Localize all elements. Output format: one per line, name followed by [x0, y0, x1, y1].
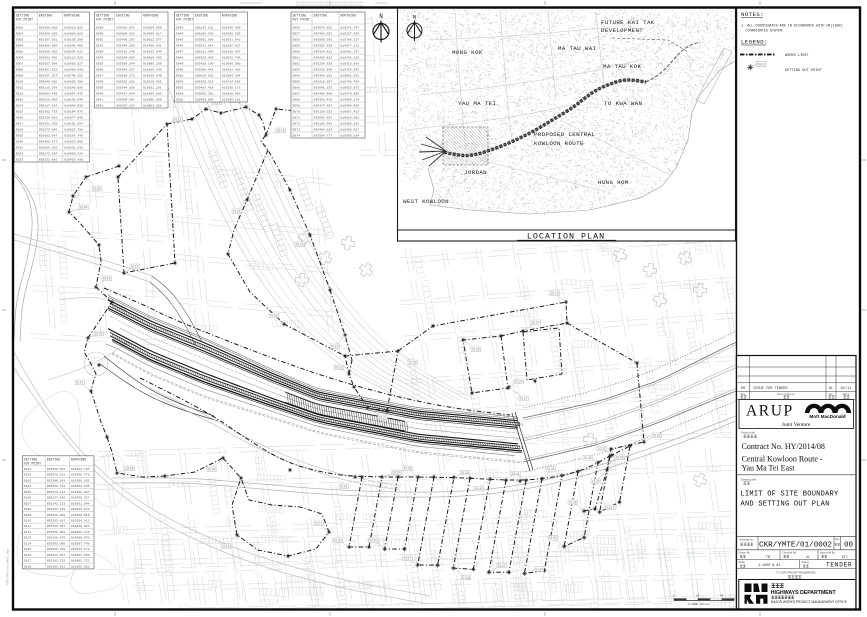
svg-text:S008: S008: [16, 67, 24, 71]
svg-text:S114: S114: [24, 541, 32, 545]
svg-text:1:1000 @ A1: 1:1000 @ A1: [758, 563, 780, 568]
svg-text:835407.134: 835407.134: [116, 103, 135, 107]
svg-text:S016: S016: [16, 115, 24, 119]
svg-text:819765.327: 819765.327: [71, 496, 90, 500]
svg-text:KTC: KTC: [842, 555, 848, 559]
svg-text:818823.088: 818823.088: [64, 139, 83, 143]
svg-text:S034: S034: [96, 55, 104, 59]
svg-text:835557.368: 835557.368: [39, 61, 58, 65]
svg-text:819506.380: 819506.380: [222, 61, 241, 65]
svg-text:S011: S011: [16, 85, 24, 89]
svg-text:819364.912: 819364.912: [71, 519, 90, 523]
svg-text:S014: S014: [16, 103, 24, 107]
svg-text:819510.856: 819510.856: [341, 61, 360, 65]
svg-text:818965.148: 818965.148: [71, 530, 90, 534]
svg-text:835319.909: 835319.909: [47, 513, 66, 517]
svg-text:835118.207: 835118.207: [314, 79, 333, 83]
svg-text:S072: S072: [293, 121, 301, 125]
svg-text:S040: S040: [96, 91, 104, 95]
svg-text:Approved By: Approved By: [820, 550, 836, 554]
svg-text:819106.540: 819106.540: [64, 97, 83, 101]
svg-text:S036: S036: [96, 67, 104, 71]
svg-text:835602.547: 835602.547: [39, 133, 58, 137]
svg-text:S052: S052: [176, 79, 184, 83]
svg-text:S123: S123: [551, 292, 559, 296]
svg-text:819194.975: 819194.975: [64, 109, 83, 113]
svg-text:819616.920: 819616.920: [64, 25, 83, 29]
svg-text:835360.441: 835360.441: [195, 67, 214, 71]
svg-text:835202.261: 835202.261: [116, 79, 135, 83]
svg-text:835485.377: 835485.377: [39, 139, 58, 143]
svg-text:818877.123: 818877.123: [341, 43, 360, 47]
svg-text:S048: S048: [176, 55, 184, 59]
svg-text:819300.034: 819300.034: [341, 133, 360, 137]
svg-text:S111: S111: [24, 524, 32, 528]
svg-text:S030: S030: [96, 31, 104, 35]
svg-text:S136: S136: [404, 467, 412, 471]
svg-text:835563.381: 835563.381: [195, 91, 214, 95]
svg-text:819715.590: 819715.590: [341, 67, 360, 71]
svg-text:S112: S112: [24, 530, 32, 534]
svg-text:819136.649: 819136.649: [143, 73, 162, 77]
svg-text:S128: S128: [653, 434, 661, 438]
svg-text:835366.478: 835366.478: [314, 97, 333, 101]
svg-text:819195.173: 819195.173: [222, 85, 241, 89]
svg-text:NORTHING: NORTHING: [222, 14, 237, 18]
svg-text:S101: S101: [24, 467, 32, 471]
svg-text:S022: S022: [16, 151, 24, 155]
svg-text:835358.092: 835358.092: [47, 530, 66, 534]
svg-text:835162.240: 835162.240: [116, 49, 135, 53]
svg-text:S031: S031: [96, 37, 104, 41]
svg-text:COORDINATES SYSTEM.: COORDINATES SYSTEM.: [746, 30, 785, 34]
svg-text:Rev: Rev: [741, 393, 746, 396]
svg-text:EASTING: EASTING: [47, 457, 60, 461]
svg-text:S065: S065: [293, 79, 301, 83]
svg-text:835695.526: 835695.526: [39, 145, 58, 149]
svg-text:Rev: Rev: [835, 538, 840, 541]
svg-text:835640.856: 835640.856: [39, 79, 58, 83]
svg-text:ISSUE FOR TENDER: ISSUE FOR TENDER: [753, 387, 788, 391]
svg-text:818863.828: 818863.828: [143, 103, 162, 107]
svg-text:S073: S073: [293, 127, 301, 131]
svg-text:835226.546: 835226.546: [314, 67, 333, 71]
svg-text:S124: S124: [532, 321, 540, 325]
svg-text:S003: S003: [16, 37, 24, 41]
svg-text:Yau Ma Tei East: Yau Ma Tei East: [742, 464, 796, 473]
svg-text:818681.237: 818681.237: [341, 49, 360, 53]
svg-text:818995.159: 818995.159: [143, 61, 162, 65]
svg-text:S013: S013: [16, 97, 24, 101]
svg-text:WORKS LIMIT: WORKS LIMIT: [785, 54, 810, 58]
svg-text:S009: S009: [16, 73, 24, 77]
svg-text:S038: S038: [96, 79, 104, 83]
svg-text:TENDER: TENDER: [826, 561, 852, 568]
svg-text:S020: S020: [16, 139, 24, 143]
svg-text:KOWLOON ROUTE: KOWLOON ROUTE: [534, 140, 584, 147]
svg-text:818636.708: 818636.708: [64, 79, 83, 83]
svg-text:AL: AL: [806, 555, 810, 559]
svg-text:S032: S032: [96, 43, 104, 47]
svg-text:S120: S120: [409, 361, 417, 365]
svg-text:835428.190: 835428.190: [195, 61, 214, 65]
svg-text:835679.151: 835679.151: [47, 473, 66, 477]
svg-text:S039: S039: [96, 85, 104, 89]
svg-text:S121: S121: [379, 416, 387, 420]
svg-text:818823.873: 818823.873: [341, 85, 360, 89]
svg-text:S103: S103: [93, 187, 101, 191]
svg-text:OUT POINT: OUT POINT: [16, 18, 33, 22]
svg-text:WEST KOWLOON: WEST KOWLOON: [403, 198, 449, 205]
svg-text:Project title: Project title: [741, 431, 755, 435]
svg-text:Drawing No.: Drawing No.: [739, 537, 754, 541]
svg-text:819073.572: 819073.572: [71, 547, 90, 551]
svg-text:EASTING: EASTING: [195, 14, 208, 18]
svg-text:819631.936: 819631.936: [64, 145, 83, 149]
svg-text:835327.567: 835327.567: [47, 553, 66, 557]
svg-text:© COPYRIGHT RESERVED: © COPYRIGHT RESERVED: [776, 571, 816, 575]
svg-text:S105: S105: [24, 490, 32, 494]
svg-text:S023: S023: [16, 157, 24, 161]
svg-text:835505.091: 835505.091: [314, 115, 333, 119]
svg-text:835504.777: 835504.777: [314, 133, 333, 137]
svg-text:835468.948: 835468.948: [314, 91, 333, 95]
svg-text:S106: S106: [95, 332, 103, 336]
svg-text:818606.297: 818606.297: [341, 127, 360, 131]
svg-text:835428.871: 835428.871: [116, 25, 135, 29]
svg-text:835117.424: 835117.424: [39, 103, 58, 107]
svg-text:835502.988: 835502.988: [195, 37, 214, 41]
svg-text:835273.113: 835273.113: [47, 490, 66, 494]
svg-text:S070: S070: [293, 109, 301, 113]
svg-text:S141: S141: [498, 564, 506, 568]
svg-text:S108: S108: [126, 467, 134, 471]
svg-text:S033: S033: [96, 49, 104, 53]
svg-text:819197.927: 819197.927: [222, 43, 241, 47]
svg-text:835532.891: 835532.891: [39, 157, 58, 161]
svg-text:835538.272: 835538.272: [116, 73, 135, 77]
svg-text:835273.869: 835273.869: [39, 127, 58, 131]
svg-text:OUT POINT: OUT POINT: [293, 18, 310, 22]
svg-text:OUT POINT: OUT POINT: [24, 461, 41, 465]
svg-text:835371.914: 835371.914: [195, 43, 214, 47]
svg-text:S117: S117: [24, 559, 32, 563]
svg-text:819012.577: 819012.577: [143, 37, 162, 41]
svg-text:835344.836: 835344.836: [116, 85, 135, 89]
svg-text:N: N: [413, 14, 416, 21]
svg-text:835175.403: 835175.403: [314, 103, 333, 107]
svg-text:819453.430: 819453.430: [64, 157, 83, 161]
svg-text:S148: S148: [616, 456, 624, 460]
svg-text:818634.017: 818634.017: [64, 49, 83, 53]
svg-text:S043: S043: [176, 25, 184, 29]
svg-text:S118: S118: [24, 564, 32, 568]
svg-text:835138.022: 835138.022: [314, 109, 333, 113]
svg-text:00: 00: [844, 542, 854, 550]
svg-text:20: 20: [696, 595, 700, 598]
svg-text:835111.494: 835111.494: [195, 49, 214, 53]
svg-text:818835.682: 818835.682: [143, 91, 162, 95]
svg-text:835103.911: 835103.911: [47, 564, 66, 568]
svg-text:S137: S137: [403, 557, 411, 561]
svg-text:S037: S037: [96, 73, 104, 77]
svg-text:MA TAU KOK: MA TAU KOK: [603, 63, 641, 70]
svg-text:OUT POINT: OUT POINT: [176, 18, 193, 22]
svg-text:Contract No. HY/2014/08: Contract No. HY/2014/08: [742, 442, 825, 451]
svg-text:S002: S002: [16, 31, 24, 35]
svg-text:835229.960: 835229.960: [39, 97, 58, 101]
svg-text:MAJOR WORKS PROJECT MANAGEMENT: MAJOR WORKS PROJECT MANAGEMENT OFFICE: [771, 600, 847, 604]
svg-text:819456.274: 819456.274: [341, 97, 360, 101]
svg-text:835231.269: 835231.269: [39, 121, 58, 125]
svg-text:835406.207: 835406.207: [116, 37, 135, 41]
svg-text:Scale: Scale: [739, 560, 746, 564]
svg-text:1. ALL COORDINATES ARE IN ACCO: 1. ALL COORDINATES ARE IN ACCORDANCE WIT…: [741, 24, 843, 29]
svg-text:835166.479: 835166.479: [47, 536, 66, 540]
svg-text:819402.722: 819402.722: [71, 559, 90, 563]
svg-text:HIGHWAYS DEPARTMENT: HIGHWAYS DEPARTMENT: [771, 590, 837, 596]
svg-text:835324.813: 835324.813: [314, 49, 333, 53]
svg-text:835485.932: 835485.932: [314, 55, 333, 59]
svg-text:835228.714: 835228.714: [47, 484, 66, 488]
svg-text:S110: S110: [24, 519, 32, 523]
svg-text:S113: S113: [24, 536, 32, 540]
svg-text:S106: S106: [24, 496, 32, 500]
svg-text:S118: S118: [296, 243, 304, 247]
svg-text:819588.070: 819588.070: [71, 536, 90, 540]
svg-text:818866.030: 818866.030: [64, 103, 83, 107]
svg-text:S145: S145: [549, 536, 557, 540]
svg-text:S125: S125: [515, 380, 523, 384]
svg-text:S109: S109: [208, 468, 216, 472]
svg-text:Checked By: Checked By: [782, 550, 797, 554]
svg-text:835237.257: 835237.257: [39, 73, 58, 77]
svg-text:819734.325: 819734.325: [64, 73, 83, 77]
svg-text:819120.695: 819120.695: [143, 79, 162, 83]
svg-text:S102: S102: [270, 314, 278, 318]
svg-text:CKR/YMTE/01/0002: CKR/YMTE/01/0002: [759, 542, 832, 550]
svg-text:S107: S107: [76, 381, 84, 385]
svg-text:S018: S018: [16, 127, 24, 131]
svg-text:835342.337: 835342.337: [47, 524, 66, 528]
svg-text:819791.116: 819791.116: [341, 55, 360, 59]
svg-text:819019.480: 819019.480: [143, 55, 162, 59]
svg-text:835699.244: 835699.244: [116, 61, 135, 65]
svg-text:819546.468: 819546.468: [64, 43, 83, 47]
svg-text:S116: S116: [24, 553, 32, 557]
svg-text:AL: AL: [829, 387, 833, 391]
svg-text:Drawing title: Drawing title: [741, 477, 757, 481]
svg-text:S112: S112: [174, 118, 182, 122]
svg-text:S143: S143: [535, 567, 543, 571]
svg-text:818999.234: 818999.234: [64, 151, 83, 155]
svg-text:S122: S122: [335, 366, 343, 370]
svg-text:835181.041: 835181.041: [314, 121, 333, 125]
svg-text:NORTHING: NORTHING: [71, 457, 86, 461]
svg-text:835641.156: 835641.156: [314, 85, 333, 89]
svg-text:S115: S115: [24, 547, 32, 551]
svg-text:S015: S015: [16, 109, 24, 113]
svg-text:FUTURE KAI TAK: FUTURE KAI TAK: [601, 19, 655, 26]
svg-text:S102: S102: [24, 473, 32, 477]
svg-text:835349.296: 835349.296: [116, 43, 135, 47]
svg-text:819196.203: 819196.203: [341, 121, 360, 125]
svg-text:S055: S055: [176, 97, 184, 101]
svg-text:S113: S113: [131, 265, 139, 269]
svg-text:S105: S105: [103, 277, 111, 281]
svg-text:NORTHING: NORTHING: [341, 14, 356, 18]
svg-text:S044: S044: [176, 31, 184, 35]
svg-text:835123.131: 835123.131: [195, 25, 214, 29]
svg-text:835323.425: 835323.425: [195, 55, 214, 59]
svg-text:MA TAU WAI: MA TAU WAI: [558, 45, 596, 52]
svg-text:N: N: [379, 13, 383, 20]
svg-text:DEVELOPMENT: DEVELOPMENT: [601, 27, 643, 34]
svg-text:S119: S119: [331, 345, 339, 349]
svg-text:S132: S132: [598, 447, 606, 451]
svg-text:S035: S035: [96, 61, 104, 65]
svg-text:835397.261: 835397.261: [39, 37, 58, 41]
svg-text:835610.525: 835610.525: [195, 73, 214, 77]
svg-text:S131: S131: [340, 485, 348, 489]
svg-text:S054: S054: [176, 91, 184, 95]
svg-text:819155.039: 819155.039: [222, 31, 241, 35]
svg-text:835560.596: 835560.596: [314, 37, 333, 41]
svg-text:835504.307: 835504.307: [116, 97, 135, 101]
svg-text:835490.956: 835490.956: [39, 43, 58, 47]
svg-text:819133.644: 819133.644: [143, 49, 162, 53]
svg-text:819551.542: 819551.542: [222, 37, 241, 41]
svg-text:819014.998: 819014.998: [143, 25, 162, 29]
svg-text:819103.540: 819103.540: [143, 67, 162, 71]
svg-text:AND SETTING OUT PLAN: AND SETTING OUT PLAN: [741, 501, 830, 509]
svg-text:S135: S135: [369, 539, 377, 543]
svg-text:835352.339: 835352.339: [314, 43, 333, 47]
svg-text:TB: TB: [766, 555, 770, 559]
svg-text:835629.468: 835629.468: [47, 547, 66, 551]
svg-text:819768.631: 819768.631: [143, 43, 162, 47]
svg-text:835508.088: 835508.088: [47, 541, 66, 545]
svg-text:835384.203: 835384.203: [314, 31, 333, 35]
svg-text:S051: S051: [176, 73, 184, 77]
svg-text:819118.867: 819118.867: [222, 49, 241, 53]
svg-text:819119.320: 819119.320: [64, 55, 83, 59]
svg-text:00: 00: [741, 387, 745, 391]
svg-text:819270.396: 819270.396: [341, 91, 360, 95]
svg-text:S111: S111: [315, 522, 323, 526]
svg-text:S058: S058: [293, 37, 301, 41]
svg-text:S104: S104: [80, 206, 88, 210]
svg-text:Drawn By: Drawn By: [739, 550, 751, 554]
svg-text:818857.413: 818857.413: [341, 109, 360, 113]
svg-text:PROPOSED CENTRAL: PROPOSED CENTRAL: [534, 131, 595, 138]
svg-text:835407.458: 835407.458: [195, 85, 214, 89]
svg-text:S053: S053: [176, 85, 184, 89]
svg-text:Central Kowloon Route -: Central Kowloon Route -: [742, 455, 823, 464]
svg-text:818811.426: 818811.426: [222, 67, 241, 71]
svg-text:835679.552: 835679.552: [314, 25, 333, 29]
svg-text:835484.013: 835484.013: [314, 127, 333, 131]
svg-text:1:1000 metres: 1:1000 metres: [688, 603, 710, 606]
svg-text:818828.095: 818828.095: [341, 115, 360, 119]
svg-text:02/11: 02/11: [841, 386, 852, 391]
svg-text:835325.515: 835325.515: [195, 79, 214, 83]
svg-text:835606.911: 835606.911: [116, 31, 135, 35]
svg-text:819061.582: 819061.582: [341, 73, 360, 77]
svg-text:835601.459: 835601.459: [39, 55, 58, 59]
svg-text:835239.851: 835239.851: [39, 115, 58, 119]
svg-text:S001: S001: [757, 62, 765, 66]
svg-text:MONG KOK: MONG KOK: [452, 49, 483, 56]
svg-text:819227.935: 819227.935: [341, 31, 360, 35]
svg-text:835115.268: 835115.268: [39, 85, 58, 89]
svg-text:835186.360: 835186.360: [195, 31, 214, 35]
svg-text:NOTES:: NOTES:: [741, 11, 764, 18]
svg-text:S142: S142: [512, 472, 520, 476]
svg-text:818958.050: 818958.050: [143, 97, 162, 101]
svg-text:S017: S017: [16, 121, 24, 125]
svg-text:819290.191: 819290.191: [222, 97, 241, 101]
svg-text:S133: S133: [334, 539, 342, 543]
svg-text:EASTING: EASTING: [116, 14, 129, 18]
svg-text:S067: S067: [293, 91, 301, 95]
svg-text:S041: S041: [96, 97, 104, 101]
svg-text:S005: S005: [16, 49, 24, 53]
svg-text:819156.926: 819156.926: [71, 564, 90, 568]
svg-text:S146: S146: [584, 456, 592, 460]
svg-text:SETTING OUT POINT: SETTING OUT POINT: [785, 69, 823, 73]
svg-text:835434.191: 835434.191: [314, 73, 333, 77]
svg-text:S007: S007: [16, 61, 24, 65]
svg-text:S019: S019: [16, 133, 24, 137]
svg-text:S138: S138: [461, 471, 469, 475]
svg-text:835180.619: 835180.619: [39, 25, 58, 29]
svg-text:Status: Status: [802, 560, 810, 564]
svg-text:NORTHING: NORTHING: [64, 14, 79, 18]
svg-text:S021: S021: [16, 145, 24, 149]
svg-text:S064: S064: [293, 73, 301, 77]
svg-text:819465.848: 819465.848: [64, 67, 83, 71]
svg-text:S134: S134: [393, 471, 401, 475]
svg-text:818602.527: 818602.527: [64, 61, 83, 65]
svg-text:LIMIT OF SITE BOUNDARY: LIMIT OF SITE BOUNDARY: [741, 491, 839, 499]
svg-text:S140: S140: [475, 487, 483, 491]
svg-text:835224.330: 835224.330: [314, 61, 333, 65]
svg-text:835234.885: 835234.885: [116, 55, 135, 59]
svg-text:818786.758: 818786.758: [341, 79, 360, 83]
svg-text:HUNG HOM: HUNG HOM: [598, 179, 629, 186]
svg-text:835437.564: 835437.564: [116, 91, 135, 95]
svg-text:S006: S006: [16, 55, 24, 59]
svg-text:S108: S108: [24, 507, 32, 511]
svg-text:835172.534: 835172.534: [39, 151, 58, 155]
svg-text:835404.006: 835404.006: [195, 97, 214, 101]
svg-text:818877.040: 818877.040: [64, 115, 83, 119]
svg-text:S063: S063: [293, 67, 301, 71]
svg-text:835342.733: 835342.733: [47, 559, 66, 563]
svg-text:CKR/YMTE/01/0002.dgn: CKR/YMTE/01/0002.dgn: [6, 549, 10, 585]
svg-text:835295.617: 835295.617: [47, 519, 66, 523]
svg-text:S127: S127: [520, 397, 528, 401]
svg-text:819397.749: 819397.749: [71, 541, 90, 545]
svg-text:819551.261: 819551.261: [143, 85, 162, 89]
svg-text:835227.426: 835227.426: [47, 496, 66, 500]
svg-text:OUT POINT: OUT POINT: [96, 18, 113, 22]
svg-text:819139.389: 819139.389: [64, 37, 83, 41]
svg-text:Mott MacDonald: Mott MacDonald: [809, 414, 845, 419]
svg-text:S062: S062: [293, 61, 301, 65]
svg-text:S056: S056: [293, 25, 301, 29]
